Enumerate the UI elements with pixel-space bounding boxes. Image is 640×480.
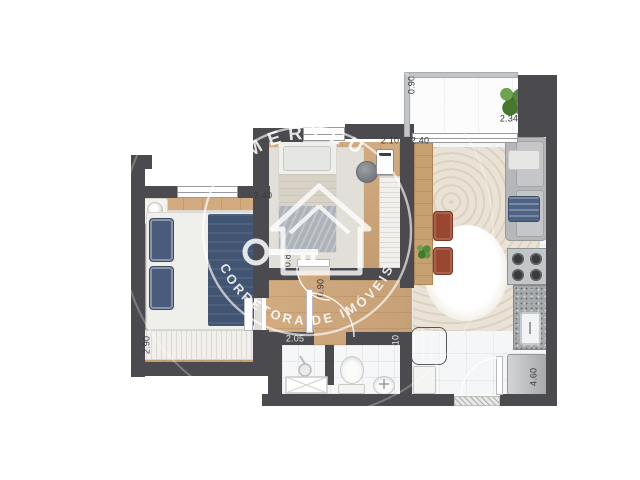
dimension-label-bathroom: 2.05: [286, 335, 304, 344]
dimension-label-hallway: 0.90: [317, 279, 326, 297]
dimension-labels: 2.402.902.102.400.902.340.800.902.051.10…: [0, 0, 640, 480]
dimension-label-hallway: 0.80: [284, 249, 293, 267]
dimension-label-kitchen: 4.60: [530, 368, 539, 386]
dimension-label-bedroom-1: 2.40: [254, 192, 272, 201]
dimension-label-balcony: 0.90: [408, 76, 417, 94]
dimension-label-bedroom-2: 2.10: [381, 137, 399, 146]
dimension-label-bathroom: 1.10: [392, 335, 401, 353]
dimension-label-balcony: 2.34: [500, 115, 518, 124]
dimension-label-bedroom-1: 2.90: [143, 336, 152, 354]
floor-plan-image: 2.402.902.102.400.902.340.800.902.051.10…: [0, 0, 640, 480]
dimension-label-living-room: 2.40: [411, 137, 429, 146]
